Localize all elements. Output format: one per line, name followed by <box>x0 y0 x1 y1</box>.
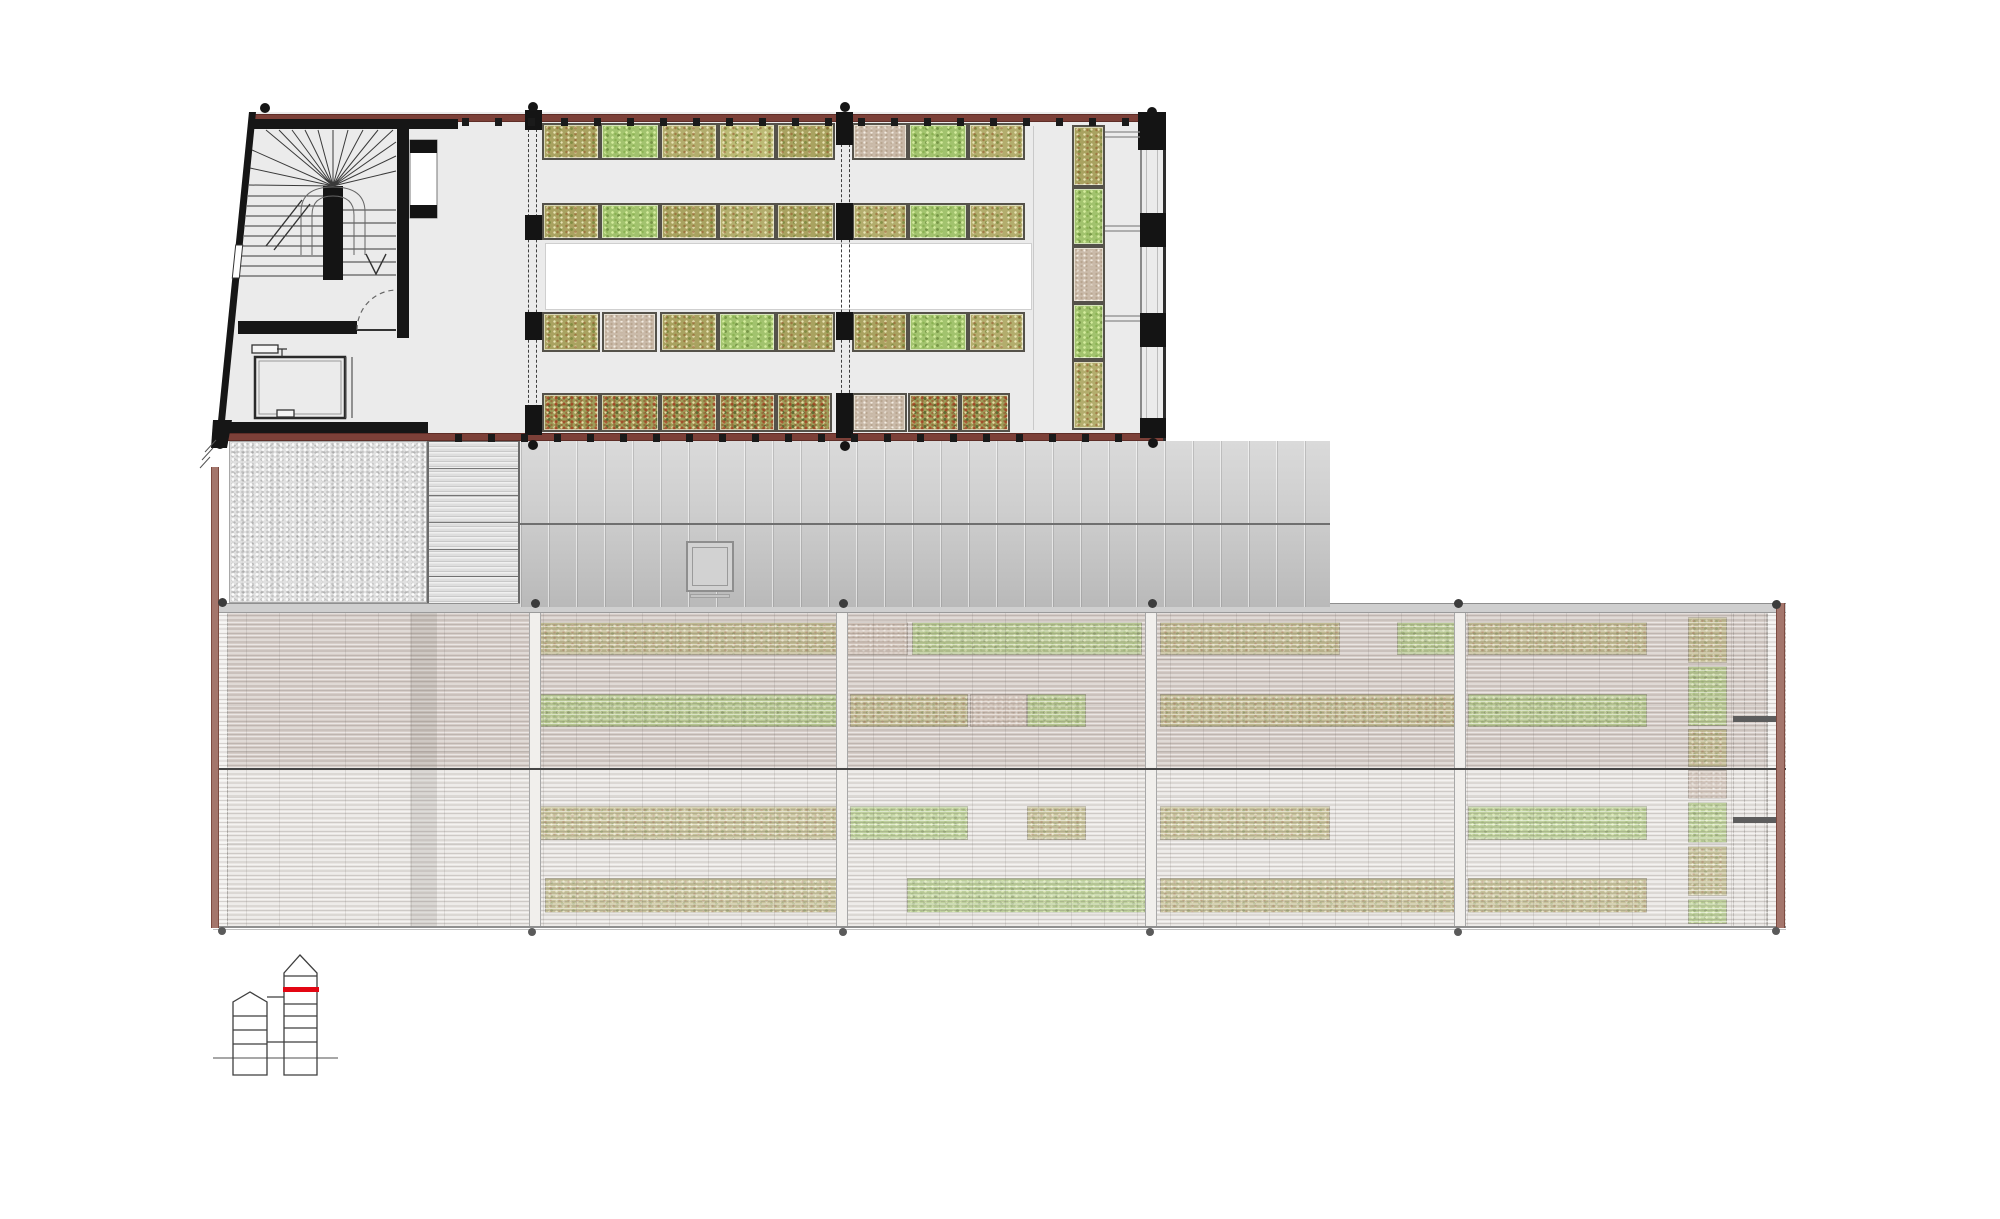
planting-bed <box>660 393 718 432</box>
planting-bed <box>968 312 1025 352</box>
facade-mullion-tick <box>1115 434 1122 442</box>
column-dot <box>1454 599 1463 608</box>
planting-bed <box>908 312 968 352</box>
facade-mullion-tick <box>693 118 700 126</box>
facade-mullion-tick <box>561 118 568 126</box>
column-dot <box>528 102 538 112</box>
facade-mullion-tick <box>858 118 865 126</box>
facade-mullion-tick <box>924 118 931 126</box>
greenhouse-crossbar <box>1733 817 1776 823</box>
structural-column <box>836 312 853 340</box>
facade-mullion-tick <box>917 434 924 442</box>
column-dot <box>218 598 227 607</box>
roof-skylight <box>686 541 734 592</box>
facade-mullion-tick <box>752 434 759 442</box>
facade-mullion-tick <box>884 434 891 442</box>
planting-bed <box>908 393 960 432</box>
facade-mullion-tick <box>495 118 502 126</box>
column-dot <box>1148 438 1158 448</box>
planting-bed <box>602 312 657 352</box>
planting-bed <box>600 393 660 432</box>
facade-mullion-tick <box>950 434 957 442</box>
structural-column <box>1138 112 1166 150</box>
facade-mullion-tick <box>818 434 825 442</box>
structural-column <box>836 112 853 145</box>
planting-bed <box>542 203 600 240</box>
facade-mullion-tick <box>990 118 997 126</box>
column-dot <box>528 928 536 936</box>
structural-column <box>525 215 542 240</box>
column-dot <box>1148 599 1157 608</box>
facade-mullion-tick <box>759 118 766 126</box>
column-dot <box>839 599 848 608</box>
planting-bed <box>660 203 718 240</box>
facade-mullion-tick <box>455 434 462 442</box>
greenhouse-crossbar <box>1733 716 1776 722</box>
structural-column <box>525 312 542 340</box>
planting-bed-vertical <box>1072 125 1105 187</box>
facade-mullion-tick <box>1056 118 1063 126</box>
facade-mullion-tick <box>825 118 832 126</box>
planting-bed <box>660 312 718 352</box>
column-dot <box>1772 927 1780 935</box>
greenhouse-east-wall <box>1776 603 1785 928</box>
facade-mullion-tick <box>521 434 528 442</box>
greenhouse-bed-layer <box>0 0 2000 1219</box>
facade-mullion-tick <box>983 434 990 442</box>
planting-bed-vertical <box>1072 246 1105 303</box>
planting-bed <box>776 393 832 432</box>
facade-mullion-tick <box>587 434 594 442</box>
stair-north-wall <box>250 119 458 129</box>
planting-bed <box>852 123 908 160</box>
planting-bed <box>776 312 835 352</box>
facade-mullion-tick <box>488 434 495 442</box>
planting-bed <box>908 123 968 160</box>
structural-column <box>1140 213 1166 247</box>
facade-mullion-tick <box>792 118 799 126</box>
column-dot <box>215 439 225 449</box>
planting-bed <box>960 393 1010 432</box>
planting-bed <box>542 123 600 160</box>
column-dot <box>260 103 270 113</box>
facade-mullion-tick <box>851 434 858 442</box>
floor-plan-canvas <box>0 0 2000 1219</box>
planting-bed <box>718 393 776 432</box>
facade-mullion-tick <box>891 118 898 126</box>
facade-mullion-tick <box>528 118 535 126</box>
column-dot <box>1146 928 1154 936</box>
column-dot <box>528 440 538 450</box>
planting-bed <box>852 203 908 240</box>
skylight-inner-frame <box>692 547 728 586</box>
planting-bed <box>600 203 660 240</box>
greenhouse-south-edge-line <box>213 929 1786 930</box>
facade-mullion-tick <box>785 434 792 442</box>
facade-mullion-tick <box>554 434 561 442</box>
planting-bed <box>852 393 907 432</box>
greenhouse-south-edge <box>213 926 1786 928</box>
facade-mullion-tick <box>627 118 634 126</box>
facade-mullion-tick <box>660 118 667 126</box>
planting-bed-vertical <box>1072 303 1105 360</box>
greenhouse-west-wall <box>211 467 219 928</box>
column-dot <box>840 102 850 112</box>
skylight-sill <box>690 594 730 598</box>
facade-mullion-tick <box>1089 118 1096 126</box>
planting-bed <box>660 123 718 160</box>
planting-bed <box>968 203 1025 240</box>
column-dot <box>1772 600 1781 609</box>
planting-bed <box>542 312 600 352</box>
gravel-roof-terrace <box>229 441 427 603</box>
structural-column <box>525 405 542 435</box>
column-dot <box>218 927 226 935</box>
column-dot <box>1147 107 1157 117</box>
facade-mullion-tick <box>620 434 627 442</box>
facade-mullion-tick <box>686 434 693 442</box>
facade-mullion-tick <box>1122 118 1129 126</box>
planting-bed <box>852 312 908 352</box>
structural-column <box>1140 313 1166 347</box>
facade-mullion-tick <box>726 118 733 126</box>
planting-bed <box>718 123 776 160</box>
facade-mullion-tick <box>653 434 660 442</box>
column-dot <box>531 599 540 608</box>
greenhouse-ridge-line <box>213 768 1786 770</box>
facade-mullion-tick <box>957 118 964 126</box>
planting-bed <box>776 123 835 160</box>
planting-bed <box>718 203 776 240</box>
column-dot <box>1454 928 1462 936</box>
facade-mullion-tick <box>594 118 601 126</box>
facade-mullion-tick <box>1023 118 1030 126</box>
structural-column <box>836 393 853 438</box>
east-wall-outer-line <box>1163 112 1166 441</box>
planting-bed <box>542 393 600 432</box>
structural-column <box>836 203 853 240</box>
planting-bed <box>600 123 660 160</box>
planting-bed <box>776 203 835 240</box>
facade-mullion-tick <box>1016 434 1023 442</box>
facade-mullion-tick <box>719 434 726 442</box>
planting-bed <box>968 123 1025 160</box>
facade-mullion-tick <box>1049 434 1056 442</box>
planting-bed <box>908 203 968 240</box>
planting-bed <box>718 312 776 352</box>
planting-bed-vertical <box>1072 187 1105 246</box>
louvered-roof-strip <box>427 441 520 603</box>
column-dot <box>840 441 850 451</box>
facade-mullion-tick <box>1082 434 1089 442</box>
planting-bed-vertical <box>1072 360 1105 430</box>
facade-mullion-tick <box>462 118 469 126</box>
column-dot <box>839 928 847 936</box>
structural-column <box>1140 418 1166 438</box>
roof-ridge-line <box>520 523 1330 525</box>
